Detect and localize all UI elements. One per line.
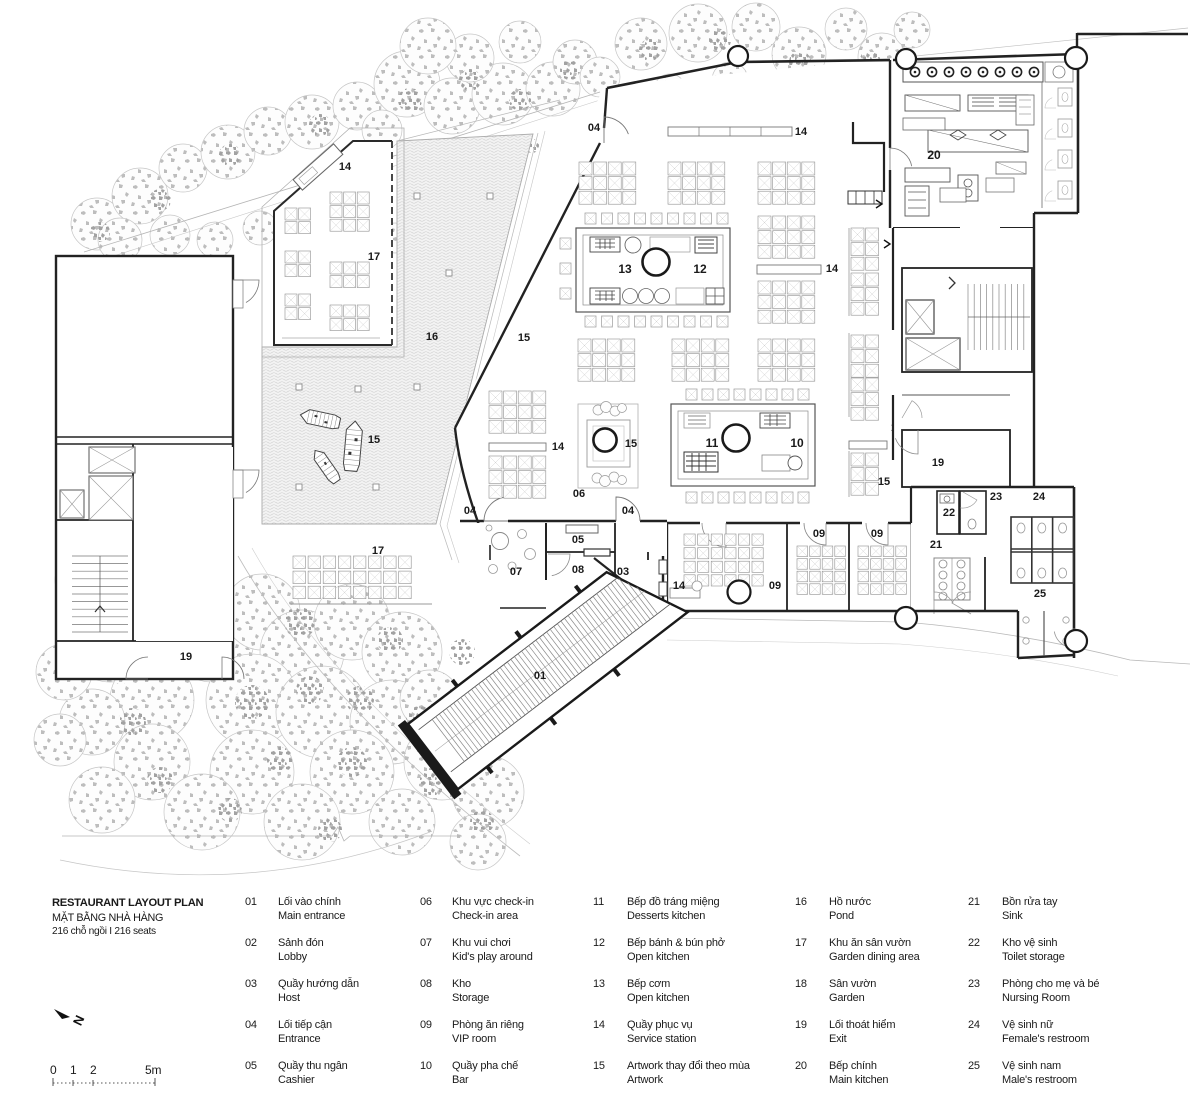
svg-text:05: 05	[572, 534, 584, 546]
svg-text:11: 11	[706, 436, 719, 450]
svg-text:17: 17	[372, 545, 384, 557]
svg-text:04: 04	[588, 122, 601, 134]
svg-text:24: 24	[1033, 491, 1046, 503]
svg-text:23: 23	[990, 491, 1002, 503]
svg-text:09: 09	[871, 528, 883, 540]
svg-text:16: 16	[426, 331, 438, 343]
svg-text:14: 14	[673, 580, 686, 592]
svg-text:20: 20	[927, 148, 941, 162]
svg-text:14: 14	[552, 441, 565, 453]
svg-text:14: 14	[826, 263, 839, 275]
svg-text:01: 01	[534, 670, 546, 682]
svg-text:22: 22	[943, 507, 955, 519]
svg-text:21: 21	[930, 539, 942, 551]
svg-text:15: 15	[625, 438, 637, 450]
svg-text:14: 14	[795, 126, 808, 138]
svg-text:09: 09	[769, 580, 781, 592]
svg-text:09: 09	[813, 528, 825, 540]
svg-text:25: 25	[1034, 588, 1046, 600]
svg-text:10: 10	[790, 436, 804, 450]
svg-text:15: 15	[878, 476, 890, 488]
svg-text:06: 06	[573, 488, 585, 500]
svg-text:12: 12	[693, 262, 707, 276]
svg-text:15: 15	[518, 332, 530, 344]
svg-text:07: 07	[510, 566, 522, 578]
svg-text:14: 14	[339, 161, 352, 173]
svg-text:15: 15	[368, 434, 380, 446]
svg-text:19: 19	[180, 651, 192, 663]
svg-text:19: 19	[932, 457, 944, 469]
svg-text:13: 13	[618, 262, 632, 276]
svg-text:04: 04	[622, 505, 635, 517]
svg-text:N: N	[70, 1013, 88, 1028]
svg-text:04: 04	[464, 505, 477, 517]
svg-text:08: 08	[572, 564, 584, 576]
svg-text:17: 17	[368, 251, 380, 263]
